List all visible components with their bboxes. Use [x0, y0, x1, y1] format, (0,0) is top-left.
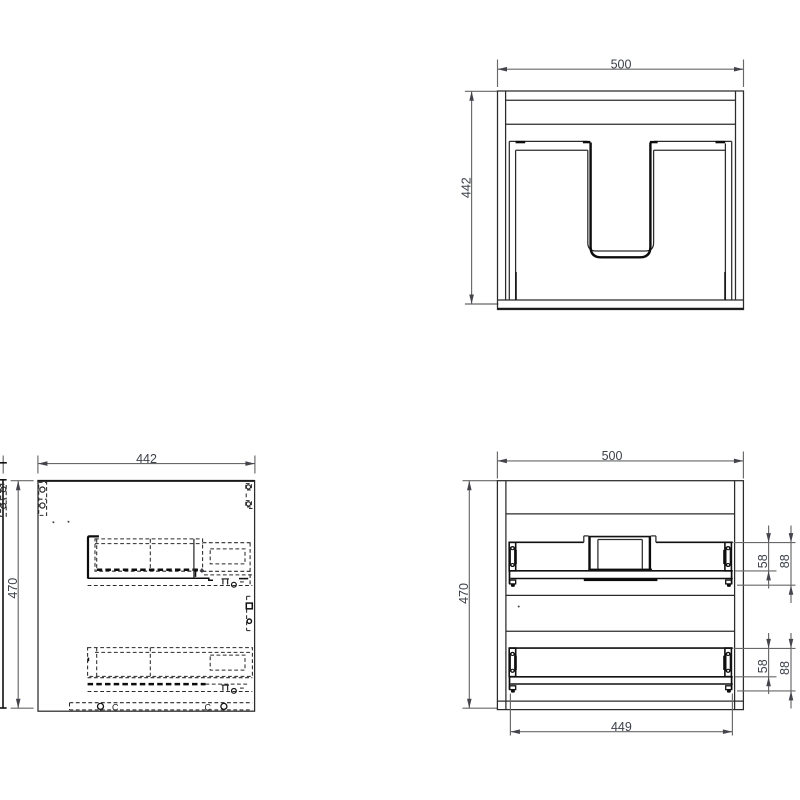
svg-text:442: 442: [136, 452, 157, 466]
svg-text:58: 58: [756, 554, 770, 568]
svg-text:470: 470: [457, 583, 471, 604]
svg-text:88: 88: [778, 661, 792, 675]
svg-text:500: 500: [611, 57, 632, 71]
svg-text:C: C: [112, 702, 119, 712]
svg-text:449: 449: [611, 720, 632, 734]
svg-text:C: C: [205, 702, 212, 712]
svg-text:470: 470: [6, 578, 20, 599]
svg-text:58: 58: [756, 659, 770, 673]
svg-text:88: 88: [778, 554, 792, 568]
svg-text:500: 500: [602, 449, 623, 463]
svg-text:442: 442: [459, 177, 473, 198]
